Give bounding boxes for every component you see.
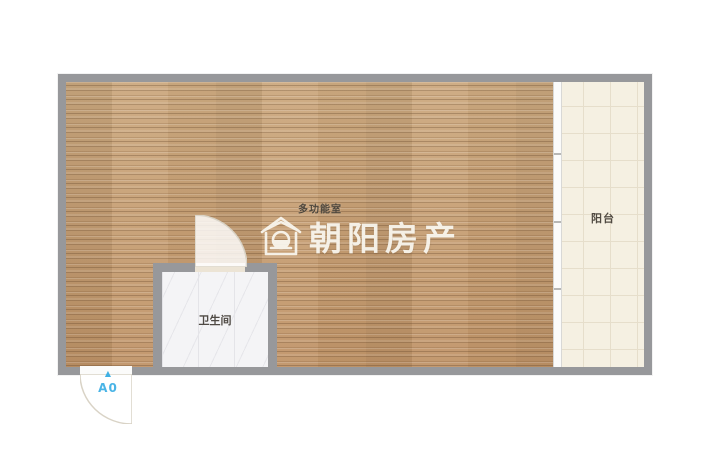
bathroom: 卫生间 (153, 263, 277, 367)
balcony-window (553, 82, 562, 367)
entrance-direction-icon: ▲ (99, 369, 117, 379)
plan-interior: 多功能室 阳台 卫生间 (66, 82, 644, 367)
balcony: 阳台 (562, 82, 644, 367)
balcony-label: 阳台 (591, 210, 615, 226)
window-tick (554, 288, 561, 290)
outer-wall: 多功能室 阳台 卫生间 (58, 74, 652, 375)
bathroom-floor: 卫生间 (162, 272, 268, 367)
floor-plan: 多功能室 阳台 卫生间 (0, 0, 720, 472)
main-room-label: 多功能室 (298, 201, 342, 216)
window-tick (554, 221, 561, 223)
entrance-label: A0 (96, 381, 120, 395)
main-room: 多功能室 (66, 82, 553, 367)
window-tick (554, 153, 561, 155)
bathroom-door-swing-icon (195, 215, 247, 267)
bathroom-label: 卫生间 (199, 312, 232, 328)
